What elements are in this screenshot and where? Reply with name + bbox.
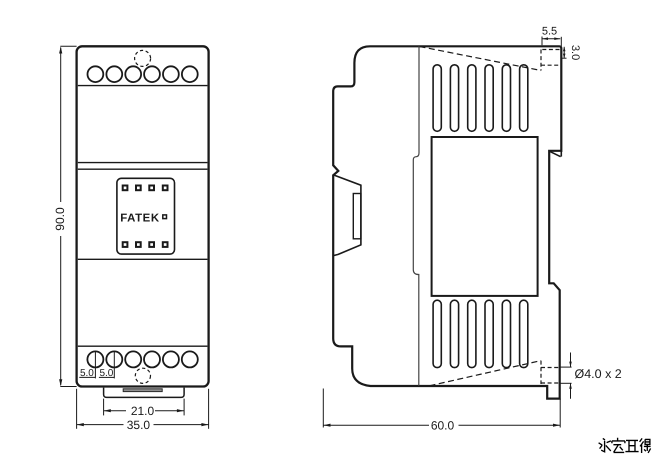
svg-text:5.0: 5.0: [99, 368, 113, 379]
svg-text:Ø4.0 x 2: Ø4.0 x 2: [575, 367, 622, 381]
svg-text:3.0: 3.0: [569, 45, 581, 60]
svg-text:FATEK: FATEK: [120, 212, 160, 224]
svg-text:5.5: 5.5: [542, 26, 557, 38]
svg-text:5.0: 5.0: [80, 368, 94, 379]
svg-text:90.0: 90.0: [53, 207, 67, 231]
svg-text:21.0: 21.0: [131, 404, 155, 418]
svg-text:35.0: 35.0: [127, 418, 151, 432]
svg-text:60.0: 60.0: [431, 418, 455, 432]
